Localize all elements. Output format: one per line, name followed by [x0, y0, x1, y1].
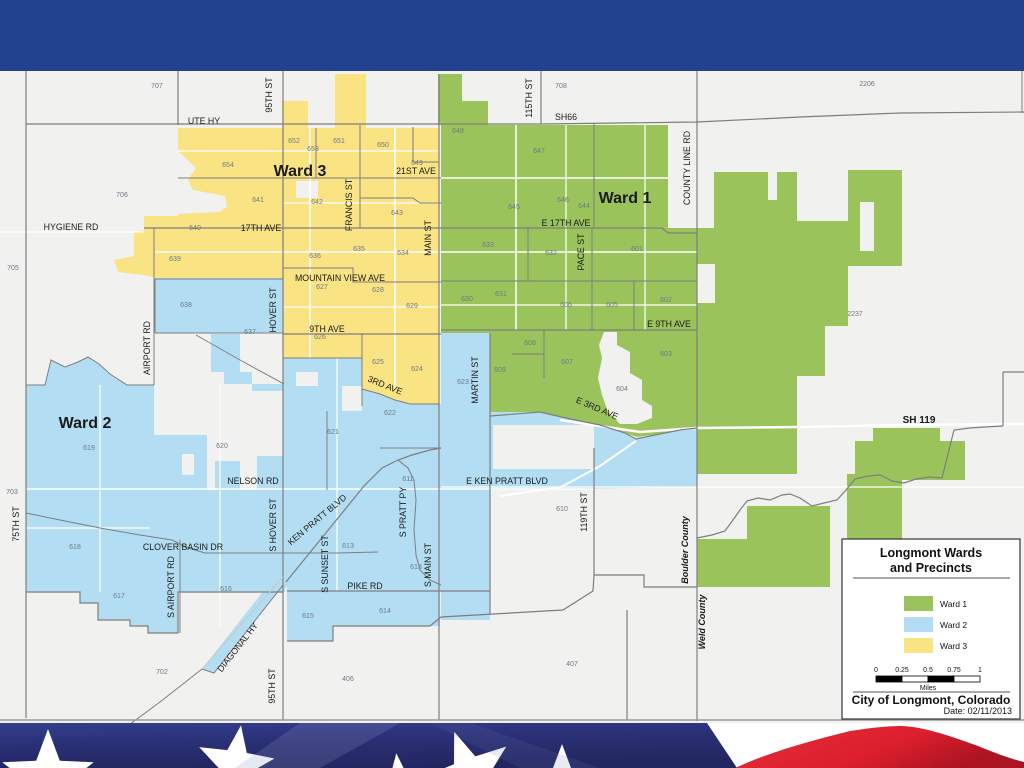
svg-text:621: 621 — [327, 429, 339, 436]
svg-text:Miles: Miles — [920, 685, 937, 692]
svg-text:Ward 2: Ward 2 — [940, 620, 967, 630]
svg-text:707: 707 — [151, 83, 163, 90]
svg-text:648: 648 — [452, 128, 464, 135]
svg-text:75TH ST: 75TH ST — [11, 506, 21, 542]
svg-text:602: 602 — [660, 297, 672, 304]
svg-text:610: 610 — [556, 506, 568, 513]
svg-text:635: 635 — [353, 246, 365, 253]
svg-text:644: 644 — [578, 203, 590, 210]
svg-text:UTE HY: UTE HY — [188, 116, 220, 126]
svg-text:Weld County: Weld County — [697, 594, 707, 650]
svg-text:Longmont Wards: Longmont Wards — [880, 546, 982, 560]
svg-text:E 17TH AVE: E 17TH AVE — [542, 218, 591, 228]
svg-text:S PRATT PY: S PRATT PY — [398, 487, 408, 538]
svg-text:17TH AVE: 17TH AVE — [241, 223, 282, 233]
svg-text:COUNTY LINE RD: COUNTY LINE RD — [682, 131, 692, 205]
svg-text:619: 619 — [83, 445, 95, 452]
svg-text:S HOVER ST: S HOVER ST — [268, 498, 278, 552]
svg-text:Ward 1: Ward 1 — [940, 599, 967, 609]
svg-text:641: 641 — [252, 197, 264, 204]
svg-text:606: 606 — [560, 302, 572, 309]
svg-text:406: 406 — [342, 676, 354, 683]
svg-text:2237: 2237 — [847, 311, 863, 318]
svg-text:627: 627 — [316, 284, 328, 291]
svg-text:629: 629 — [406, 303, 418, 310]
svg-text:AIRPORT RD: AIRPORT RD — [142, 321, 152, 375]
svg-text:Ward 2: Ward 2 — [59, 415, 112, 432]
svg-text:626: 626 — [314, 334, 326, 341]
svg-text:1: 1 — [978, 667, 982, 674]
svg-text:S AIRPORT RD: S AIRPORT RD — [166, 556, 176, 618]
svg-text:MOUNTAIN VIEW AVE: MOUNTAIN VIEW AVE — [295, 273, 385, 283]
svg-text:623: 623 — [457, 379, 469, 386]
svg-text:633: 633 — [482, 242, 494, 249]
svg-text:614: 614 — [379, 608, 391, 615]
svg-text:407: 407 — [566, 661, 578, 668]
svg-text:618: 618 — [69, 544, 81, 551]
svg-text:651: 651 — [333, 138, 345, 145]
svg-text:706: 706 — [116, 192, 128, 199]
svg-text:702: 702 — [156, 669, 168, 676]
svg-text:654: 654 — [222, 162, 234, 169]
svg-text:Ward 1: Ward 1 — [599, 190, 652, 207]
svg-text:634: 634 — [397, 250, 409, 257]
svg-text:642: 642 — [311, 199, 323, 206]
svg-text:MAIN ST: MAIN ST — [423, 220, 433, 256]
svg-text:643: 643 — [391, 210, 403, 217]
svg-text:611: 611 — [402, 476, 413, 483]
svg-text:638: 638 — [180, 302, 192, 309]
svg-text:21ST AVE: 21ST AVE — [396, 166, 436, 176]
svg-text:PIKE RD: PIKE RD — [347, 581, 382, 591]
svg-text:PACE ST: PACE ST — [576, 233, 586, 271]
svg-text:625: 625 — [372, 359, 384, 366]
svg-text:615: 615 — [302, 613, 314, 620]
svg-text:City of Longmont, Colorado: City of Longmont, Colorado — [852, 693, 1011, 707]
svg-text:650: 650 — [377, 142, 389, 149]
svg-text:Boulder County: Boulder County — [680, 515, 690, 583]
svg-text:0.5: 0.5 — [923, 667, 933, 674]
svg-text:NELSON RD: NELSON RD — [227, 476, 278, 486]
svg-text:703: 703 — [6, 489, 18, 496]
svg-text:653: 653 — [307, 146, 319, 153]
svg-text:115TH ST: 115TH ST — [524, 78, 534, 118]
svg-text:630: 630 — [461, 296, 473, 303]
svg-text:646: 646 — [557, 197, 569, 204]
svg-text:616: 616 — [220, 586, 232, 593]
svg-text:622: 622 — [384, 410, 396, 417]
svg-text:Date: 02/11/2013: Date: 02/11/2013 — [944, 706, 1012, 716]
svg-text:632: 632 — [545, 250, 557, 257]
svg-text:620: 620 — [216, 443, 228, 450]
svg-text:9TH AVE: 9TH AVE — [309, 324, 345, 334]
svg-text:95TH ST: 95TH ST — [267, 668, 277, 704]
svg-text:637: 637 — [244, 329, 256, 336]
svg-text:HOVER ST: HOVER ST — [268, 287, 278, 333]
svg-text:639: 639 — [169, 256, 181, 263]
svg-text:S SUNSET ST: S SUNSET ST — [320, 535, 330, 593]
svg-text:640: 640 — [189, 225, 201, 232]
svg-text:628: 628 — [372, 287, 384, 294]
svg-text:0: 0 — [874, 667, 878, 674]
svg-text:647: 647 — [533, 148, 545, 155]
svg-text:705: 705 — [7, 265, 19, 272]
svg-text:608: 608 — [524, 340, 536, 347]
svg-text:95TH ST: 95TH ST — [264, 77, 274, 113]
svg-text:636: 636 — [309, 253, 321, 260]
svg-text:E KEN PRATT BLVD: E KEN PRATT BLVD — [466, 476, 548, 486]
svg-text:Ward 3: Ward 3 — [274, 163, 327, 180]
svg-text:SH66: SH66 — [555, 112, 577, 122]
svg-text:645: 645 — [508, 204, 520, 211]
svg-text:652: 652 — [288, 138, 300, 145]
svg-text:605: 605 — [606, 302, 618, 309]
svg-text:0.75: 0.75 — [947, 667, 961, 674]
svg-text:CLOVER BASIN DR: CLOVER BASIN DR — [143, 542, 223, 552]
svg-text:FRANCIS ST: FRANCIS ST — [344, 178, 354, 231]
svg-text:607: 607 — [561, 359, 573, 366]
svg-text:SH 119: SH 119 — [903, 415, 936, 426]
svg-text:119TH ST: 119TH ST — [579, 492, 589, 532]
svg-text:609: 609 — [494, 367, 506, 374]
svg-text:2206: 2206 — [859, 81, 875, 88]
svg-text:613: 613 — [410, 564, 422, 571]
svg-text:613: 613 — [342, 543, 354, 550]
svg-text:604: 604 — [616, 386, 628, 393]
svg-text:E 9TH AVE: E 9TH AVE — [647, 319, 691, 329]
svg-text:HYGIENE RD: HYGIENE RD — [44, 222, 99, 232]
svg-text:708: 708 — [555, 83, 567, 90]
svg-text:601: 601 — [631, 246, 643, 253]
svg-text:Ward 3: Ward 3 — [940, 641, 967, 651]
svg-text:624: 624 — [411, 366, 423, 373]
svg-text:631: 631 — [495, 291, 507, 298]
svg-text:617: 617 — [113, 593, 125, 600]
svg-text:S MAIN ST: S MAIN ST — [423, 542, 433, 587]
svg-text:and Precincts: and Precincts — [890, 561, 972, 575]
svg-text:MARTIN ST: MARTIN ST — [470, 356, 480, 404]
svg-text:0.25: 0.25 — [895, 667, 909, 674]
svg-text:603: 603 — [660, 351, 672, 358]
